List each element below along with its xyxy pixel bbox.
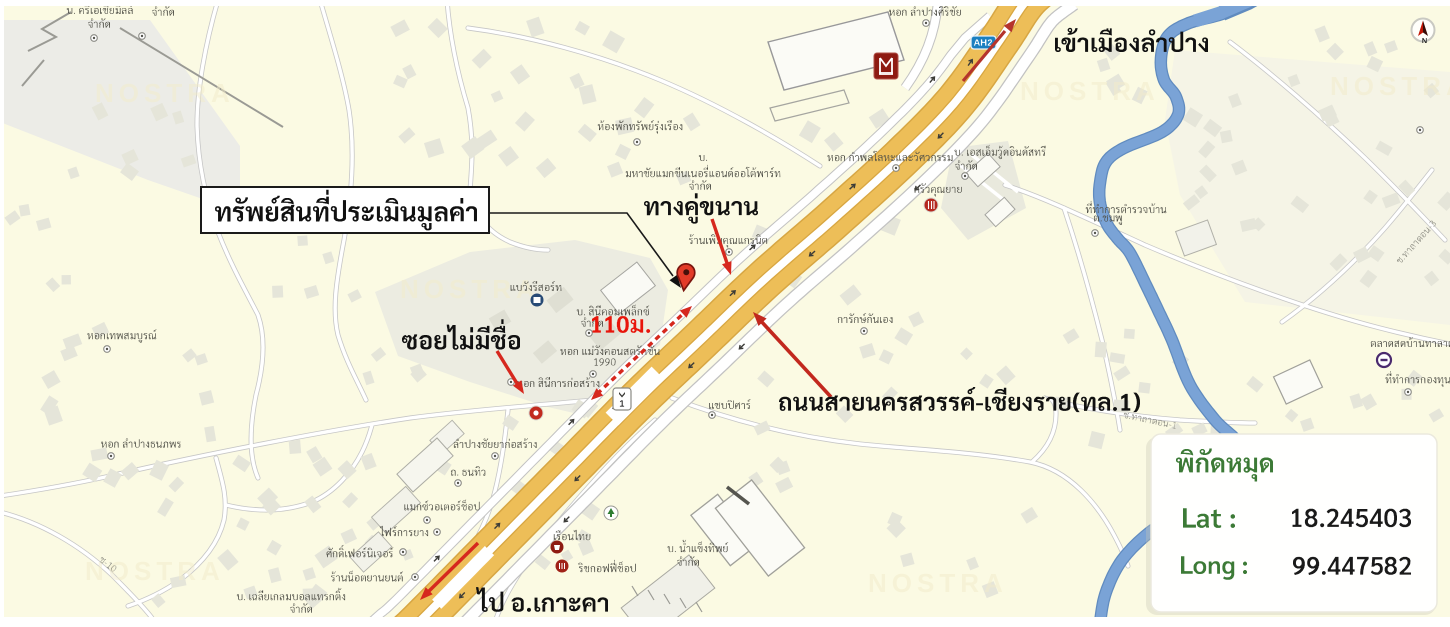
svg-text:NOSTRA: NOSTRA: [868, 568, 1008, 598]
svg-text:NOSTRA: NOSTRA: [1330, 71, 1450, 101]
svg-text:NOSTRA: NOSTRA: [400, 274, 540, 304]
svg-text:NOSTRA: NOSTRA: [85, 556, 225, 586]
svg-text:NOSTRA: NOSTRA: [1020, 76, 1160, 106]
svg-text:NOSTRA: NOSTRA: [95, 78, 235, 108]
